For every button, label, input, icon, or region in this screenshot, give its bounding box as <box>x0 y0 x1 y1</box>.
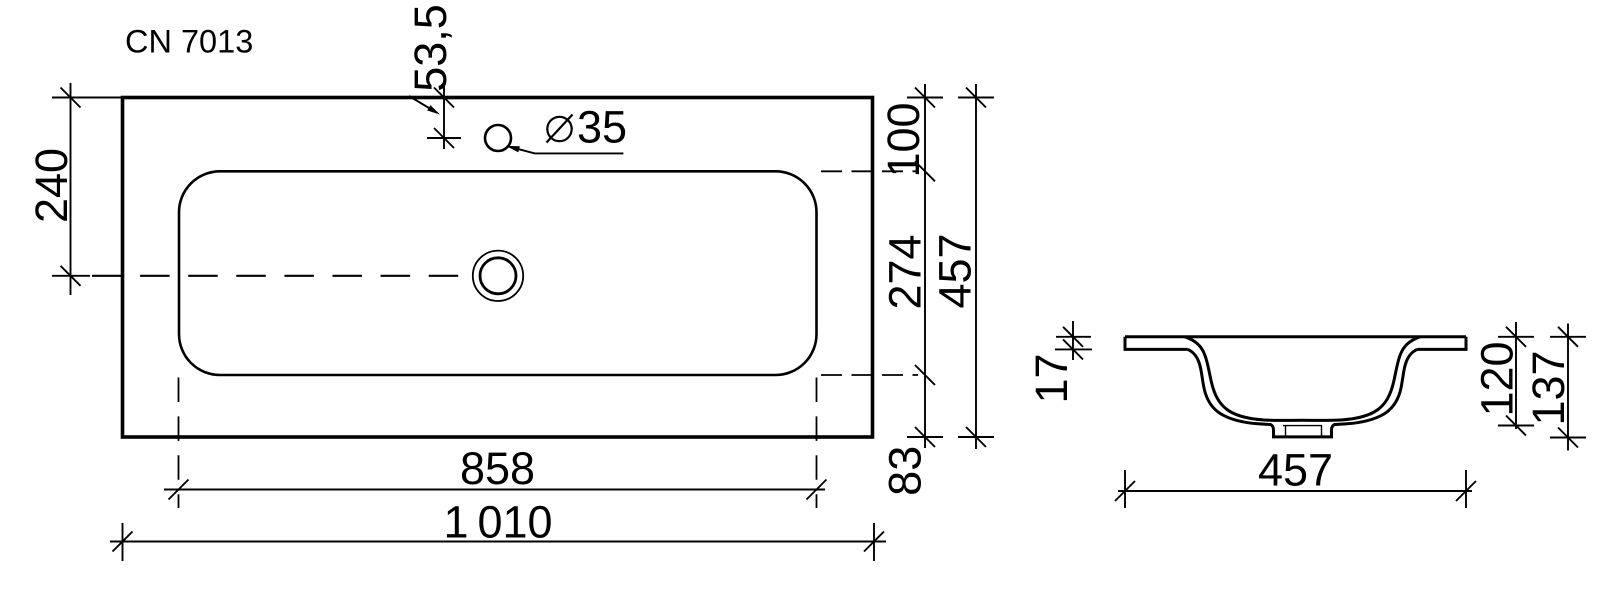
svg-text:858: 858 <box>460 443 535 494</box>
svg-text:137: 137 <box>1523 350 1574 425</box>
svg-text:83: 83 <box>880 446 931 496</box>
svg-text:CN 7013: CN 7013 <box>125 24 253 60</box>
svg-text:17: 17 <box>1026 353 1077 403</box>
svg-text:274: 274 <box>880 234 931 309</box>
svg-text:53,5: 53,5 <box>405 4 456 92</box>
svg-text:120: 120 <box>1472 341 1523 416</box>
svg-text:35: 35 <box>577 102 627 153</box>
svg-text:1 010: 1 010 <box>443 497 552 548</box>
svg-text:240: 240 <box>26 148 77 223</box>
svg-text:100: 100 <box>878 102 929 177</box>
svg-text:457: 457 <box>930 233 981 308</box>
svg-text:457: 457 <box>1258 445 1333 496</box>
